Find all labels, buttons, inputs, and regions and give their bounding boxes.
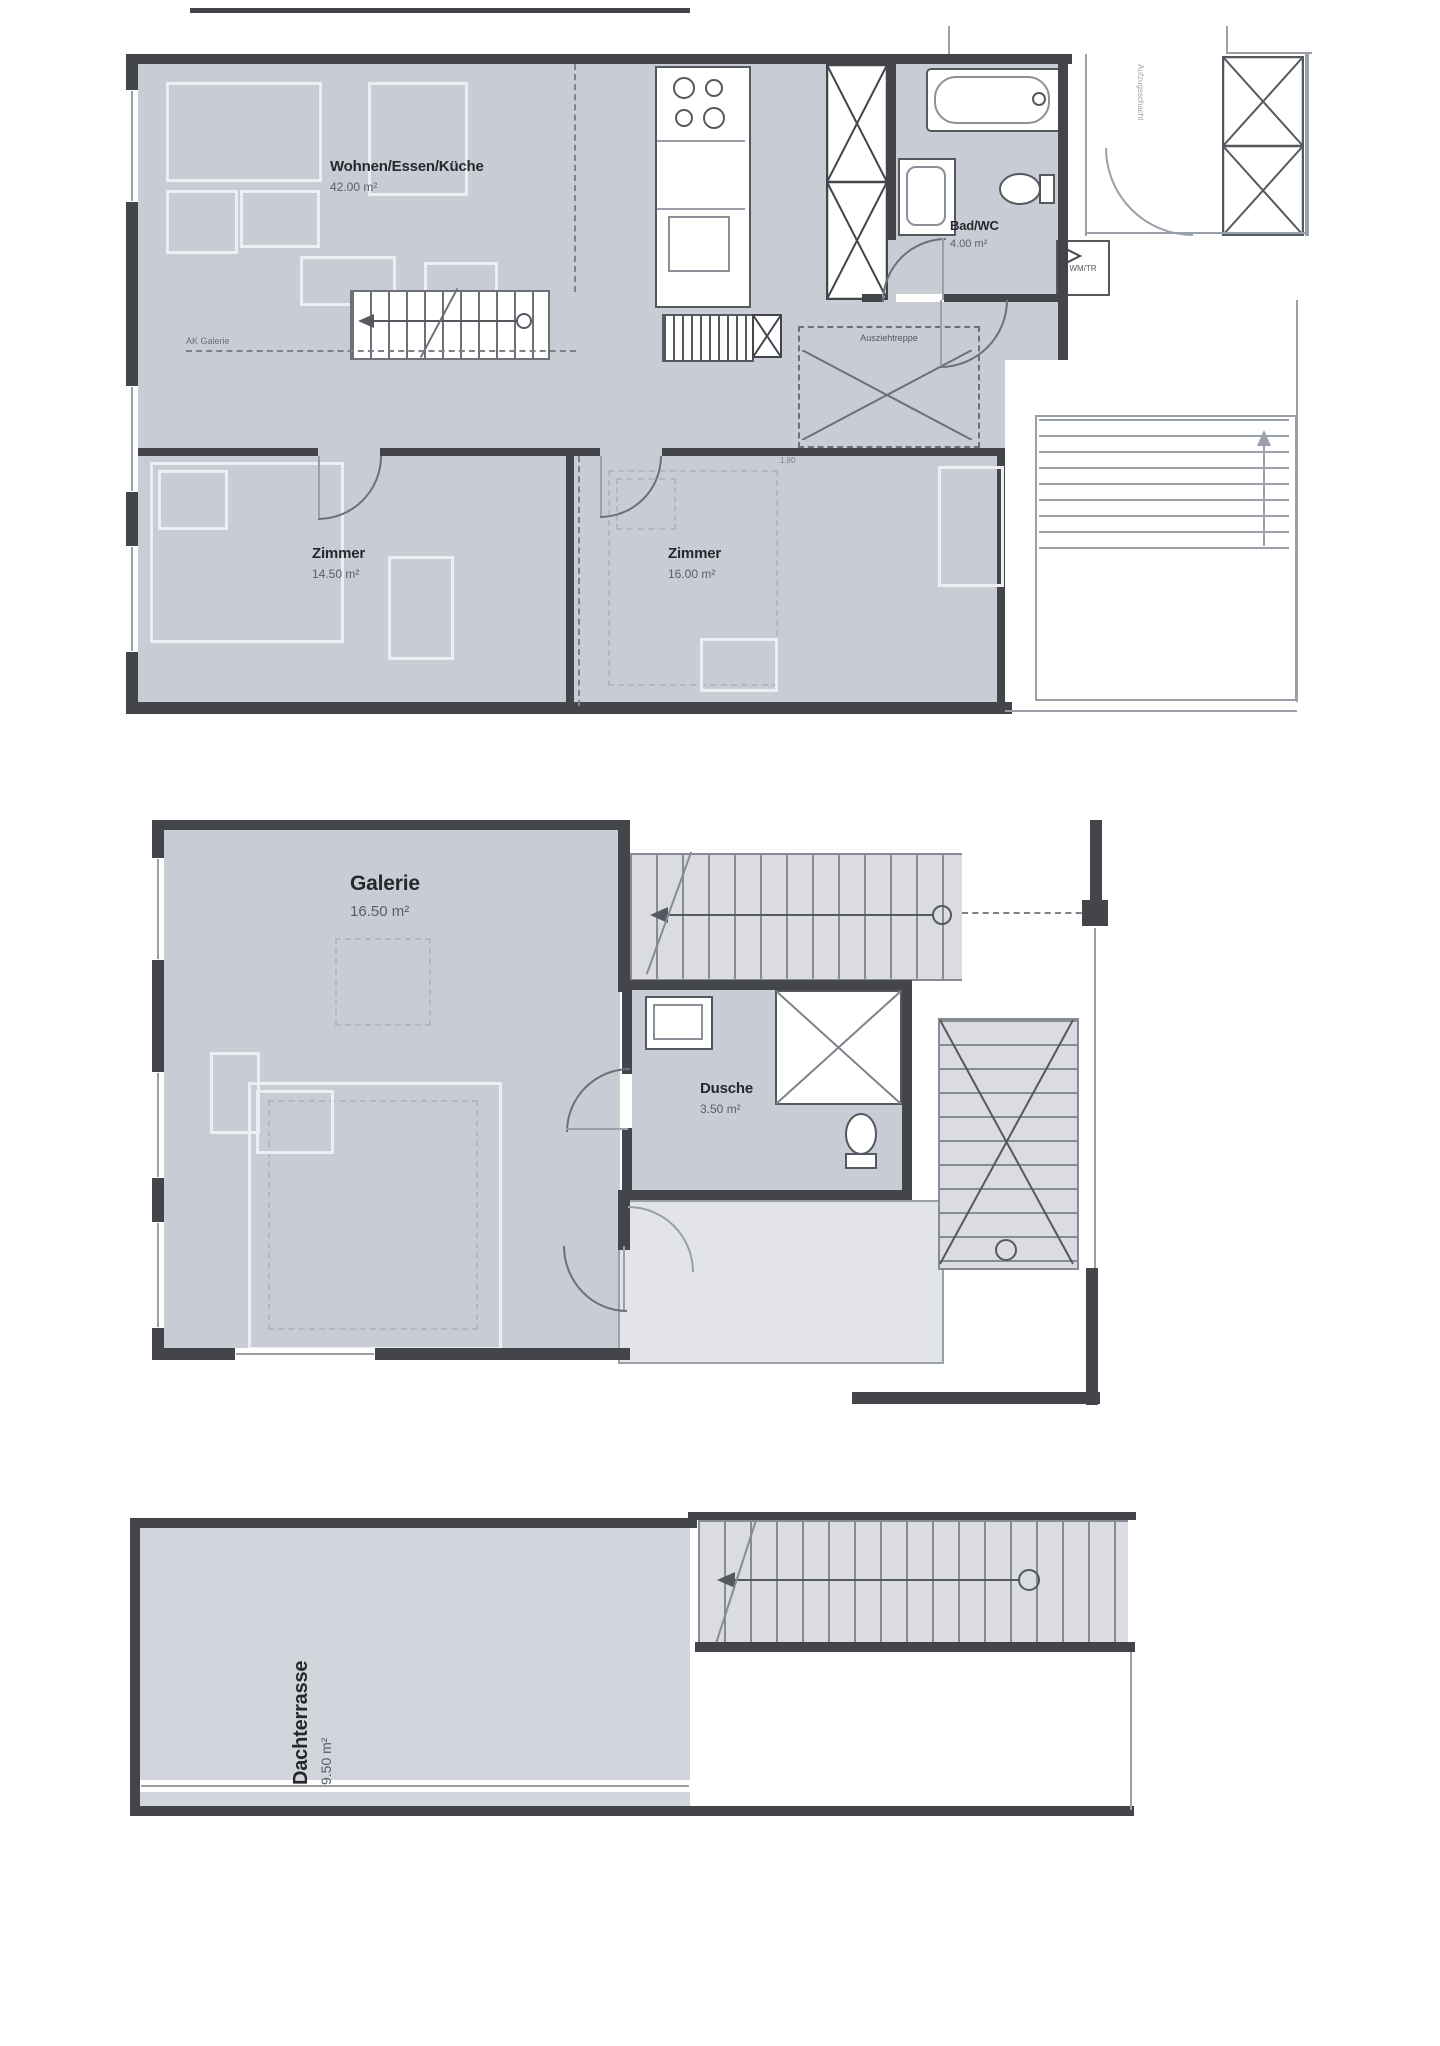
stair-arrow (1252, 428, 1276, 560)
toilet-icon (996, 166, 1060, 212)
room-area: 14.50 m² (312, 567, 365, 581)
black-column (1082, 900, 1108, 926)
room-name: Wohnen/Essen/Küche (330, 158, 484, 175)
room-name: Zimmer (668, 545, 721, 562)
ak-galerie-label: AK Galerie (186, 336, 230, 346)
window (126, 546, 138, 652)
room-area: 3.50 m² (700, 1102, 753, 1116)
wall (1086, 1268, 1098, 1405)
wall (662, 448, 1005, 456)
wall (888, 54, 896, 240)
terrace-fill (140, 1528, 690, 1806)
room-label-bath: Bad/WC 4.00 m² (950, 218, 999, 250)
sofa (166, 82, 322, 182)
wall (152, 820, 630, 830)
window (235, 1348, 375, 1360)
toilet-icon (838, 1108, 884, 1172)
wall (695, 1642, 1135, 1652)
kitchen-divider (657, 208, 745, 210)
furniture-dashed (335, 938, 431, 1026)
room-label-bedroom1: Zimmer 14.50 m² (312, 545, 365, 581)
wall (1058, 54, 1068, 360)
room-name: Galerie (350, 872, 420, 896)
door-arc (1105, 148, 1193, 236)
wall (566, 456, 574, 710)
floorplan-canvas: WM/TR AK Galerie Ausziehtreppe (0, 0, 1440, 2046)
wardrobe (210, 1052, 260, 1134)
door-leaf (566, 1128, 628, 1130)
stair-arrow (648, 902, 958, 928)
stair-arrow (356, 310, 538, 332)
terrace-sill (140, 1780, 690, 1792)
pillow (256, 1090, 334, 1154)
window (152, 858, 164, 960)
door-leaf (942, 238, 944, 300)
room-area: 4.00 m² (950, 238, 999, 250)
room-label-shower: Dusche 3.50 m² (700, 1080, 753, 1116)
window (152, 1222, 164, 1328)
wall (130, 1518, 697, 1528)
wall (1226, 52, 1312, 54)
wall (126, 448, 318, 456)
room-name: Dusche (700, 1080, 753, 1097)
dashed-gallery-line (186, 350, 576, 352)
door-leaf (940, 300, 942, 366)
dashed-gallery-line (578, 456, 580, 706)
window (126, 90, 138, 202)
wall (130, 1518, 140, 1816)
room-name: Bad/WC (950, 218, 999, 233)
wall (862, 294, 882, 302)
door-leaf (623, 1246, 625, 1310)
window (152, 1072, 164, 1178)
wall (622, 990, 632, 1074)
washbasin-inner (906, 166, 946, 226)
elevator-shaft (1222, 56, 1304, 236)
entry-marker (1062, 246, 1082, 266)
stair-arrow (715, 1566, 1045, 1594)
wall (902, 980, 912, 1200)
window (126, 386, 138, 492)
cooktop-icon (660, 70, 742, 136)
wall (152, 1348, 630, 1360)
wall (1305, 54, 1309, 236)
kitchen-sink (668, 216, 730, 272)
dresser (700, 638, 778, 692)
ausziehtreppe-label: Ausziehtreppe (860, 333, 918, 343)
wall (190, 8, 690, 13)
pillow (158, 470, 228, 530)
room-area: 16.50 m² (350, 903, 420, 920)
wall (130, 1806, 1134, 1816)
stair-cross-lines (938, 1018, 1075, 1266)
dashed-gallery-line (574, 64, 576, 292)
wardrobe (938, 466, 1004, 587)
dashed-line (962, 912, 1092, 914)
wall (1085, 54, 1087, 236)
wall (1226, 26, 1228, 54)
room-area: 9.50 m² (318, 1525, 334, 1785)
wall (1085, 232, 1305, 234)
kitchen-divider (657, 140, 745, 142)
room-label-living: Wohnen/Essen/Küche 42.00 m² (330, 158, 484, 194)
room-label-gallery: Galerie 16.50 m² (350, 872, 420, 920)
washbasin-inner (653, 1004, 703, 1040)
wall (1094, 928, 1096, 1268)
tall-cabinet-shaft (826, 64, 888, 300)
room-label-bedroom2: Zimmer 16.00 m² (668, 545, 721, 581)
room-name: Dachterrasse (290, 1525, 313, 1785)
room-area: 16.00 m² (668, 567, 721, 581)
room-area: 42.00 m² (330, 180, 484, 194)
door-leaf (600, 456, 602, 516)
wall (622, 1190, 912, 1200)
wall (380, 448, 600, 456)
wardrobe (388, 556, 454, 660)
wall (948, 26, 950, 54)
room-label-terrace: Dachterrasse 9.50 m² (290, 1525, 360, 1785)
wall (852, 1392, 1100, 1404)
floor-grate (662, 314, 754, 362)
wall (1296, 300, 1298, 702)
armchair (166, 190, 238, 254)
wall (618, 820, 630, 992)
dimension-label: 1.80 (780, 456, 796, 465)
shower (775, 990, 902, 1105)
shaft-box (752, 314, 782, 358)
aufzugsschacht-label: Aufzugsschacht (1136, 64, 1145, 184)
wall (1005, 710, 1297, 712)
wall (1130, 1652, 1132, 1810)
wall (688, 1512, 1136, 1520)
wall (622, 980, 912, 990)
coffee-table (240, 190, 320, 248)
door-leaf (318, 456, 320, 518)
bathtub-tap (1032, 92, 1046, 106)
room-name: Zimmer (312, 545, 365, 562)
wall (126, 54, 1072, 64)
